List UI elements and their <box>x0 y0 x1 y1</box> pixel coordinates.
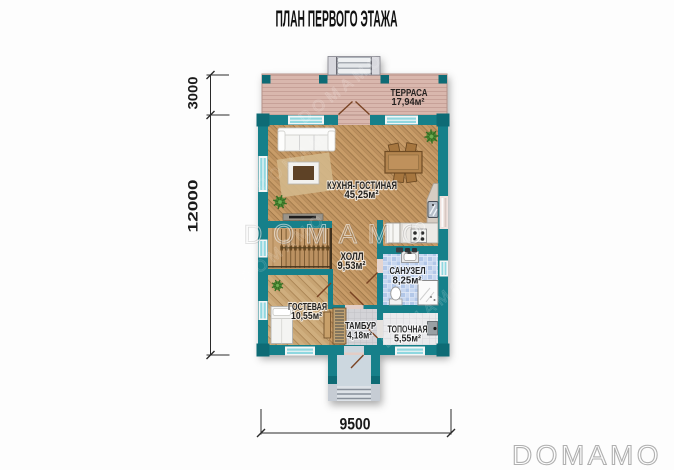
svg-text:9500: 9500 <box>340 416 371 434</box>
svg-text:4,18м²: 4,18м² <box>347 331 373 342</box>
svg-text:ПЛАН ПЕРВОГО ЭТАЖА: ПЛАН ПЕРВОГО ЭТАЖА <box>276 6 398 32</box>
svg-text:3000: 3000 <box>186 77 201 110</box>
svg-text:17,94м²: 17,94м² <box>392 96 425 108</box>
svg-text:45,25м²: 45,25м² <box>345 189 379 201</box>
svg-text:DOMAMO: DOMAMO <box>512 440 662 470</box>
svg-text:8,25м²: 8,25м² <box>393 275 422 287</box>
svg-text:9,53м²: 9,53м² <box>338 260 366 272</box>
svg-text:12000: 12000 <box>186 180 201 233</box>
svg-text:10,55м²: 10,55м² <box>291 310 322 322</box>
svg-text:DOMAMO: DOMAMO <box>243 219 434 249</box>
